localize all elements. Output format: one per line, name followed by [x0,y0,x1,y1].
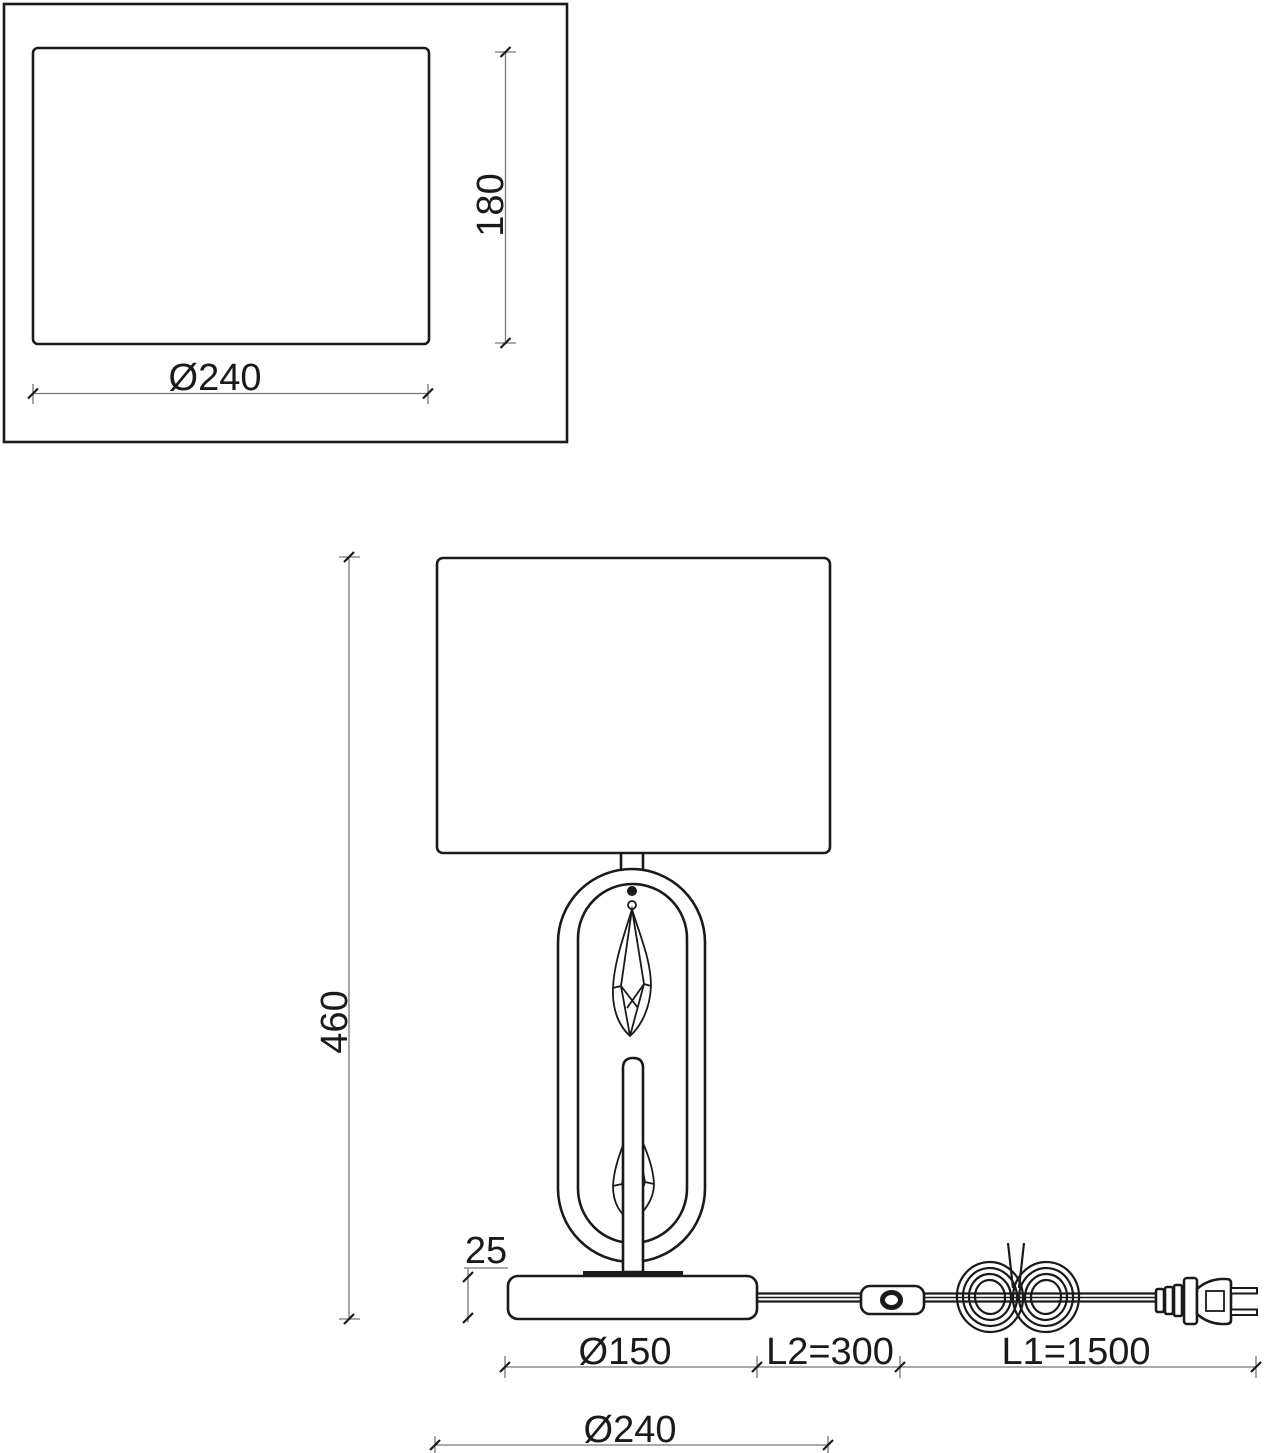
plug-prong-top [1231,1288,1257,1294]
shade-top-outline [33,48,429,344]
dimension-shade-width-top: Ø240 [28,357,433,404]
inline-switch [861,1286,924,1314]
lamp-dimension-drawing: 180 Ø240 [0,0,1267,1453]
dimension-overall-height: 460 [314,552,360,1324]
lamp-post [623,1058,643,1272]
lamp-base [508,1276,757,1319]
plug-body [1197,1279,1231,1324]
cord-length-label: L1=1500 [1002,1331,1151,1373]
switch-button [883,1293,901,1308]
technical-drawing-sheet: 180 Ø240 [0,0,1267,1453]
hanger-bead [627,886,637,896]
lamp-neck [621,853,643,869]
plug-rib [1174,1285,1182,1316]
plug-rib [1165,1287,1173,1314]
switch-distance-label: L2=300 [766,1331,894,1373]
plug-collar [1184,1278,1197,1324]
shade-depth-label: 180 [470,173,512,236]
lamp-shade-outline [437,558,830,853]
base-diameter-label: Ø150 [579,1331,672,1373]
front-view: 460 25 Ø150 L2=300 L1=1500 [314,552,1261,1453]
shade-diameter-top-label: Ø240 [169,357,262,399]
dimension-shade-width-front: Ø240 [430,1409,833,1453]
post-flange [583,1271,683,1277]
plug-rib [1156,1289,1164,1312]
overall-height-label: 460 [314,990,356,1053]
dimension-chain-bottom: Ø150 L2=300 L1=1500 [500,1331,1261,1378]
power-cord [757,1294,1160,1302]
base-height-label: 25 [465,1230,507,1272]
dimension-shade-depth: 180 [470,47,516,348]
top-view: 180 Ø240 [4,4,567,442]
power-plug [1156,1278,1257,1324]
plug-prong-bottom [1231,1310,1257,1316]
shade-diameter-front-label: Ø240 [584,1409,677,1451]
cord-coil [954,1243,1083,1335]
dimension-base-height: 25 [463,1230,508,1323]
